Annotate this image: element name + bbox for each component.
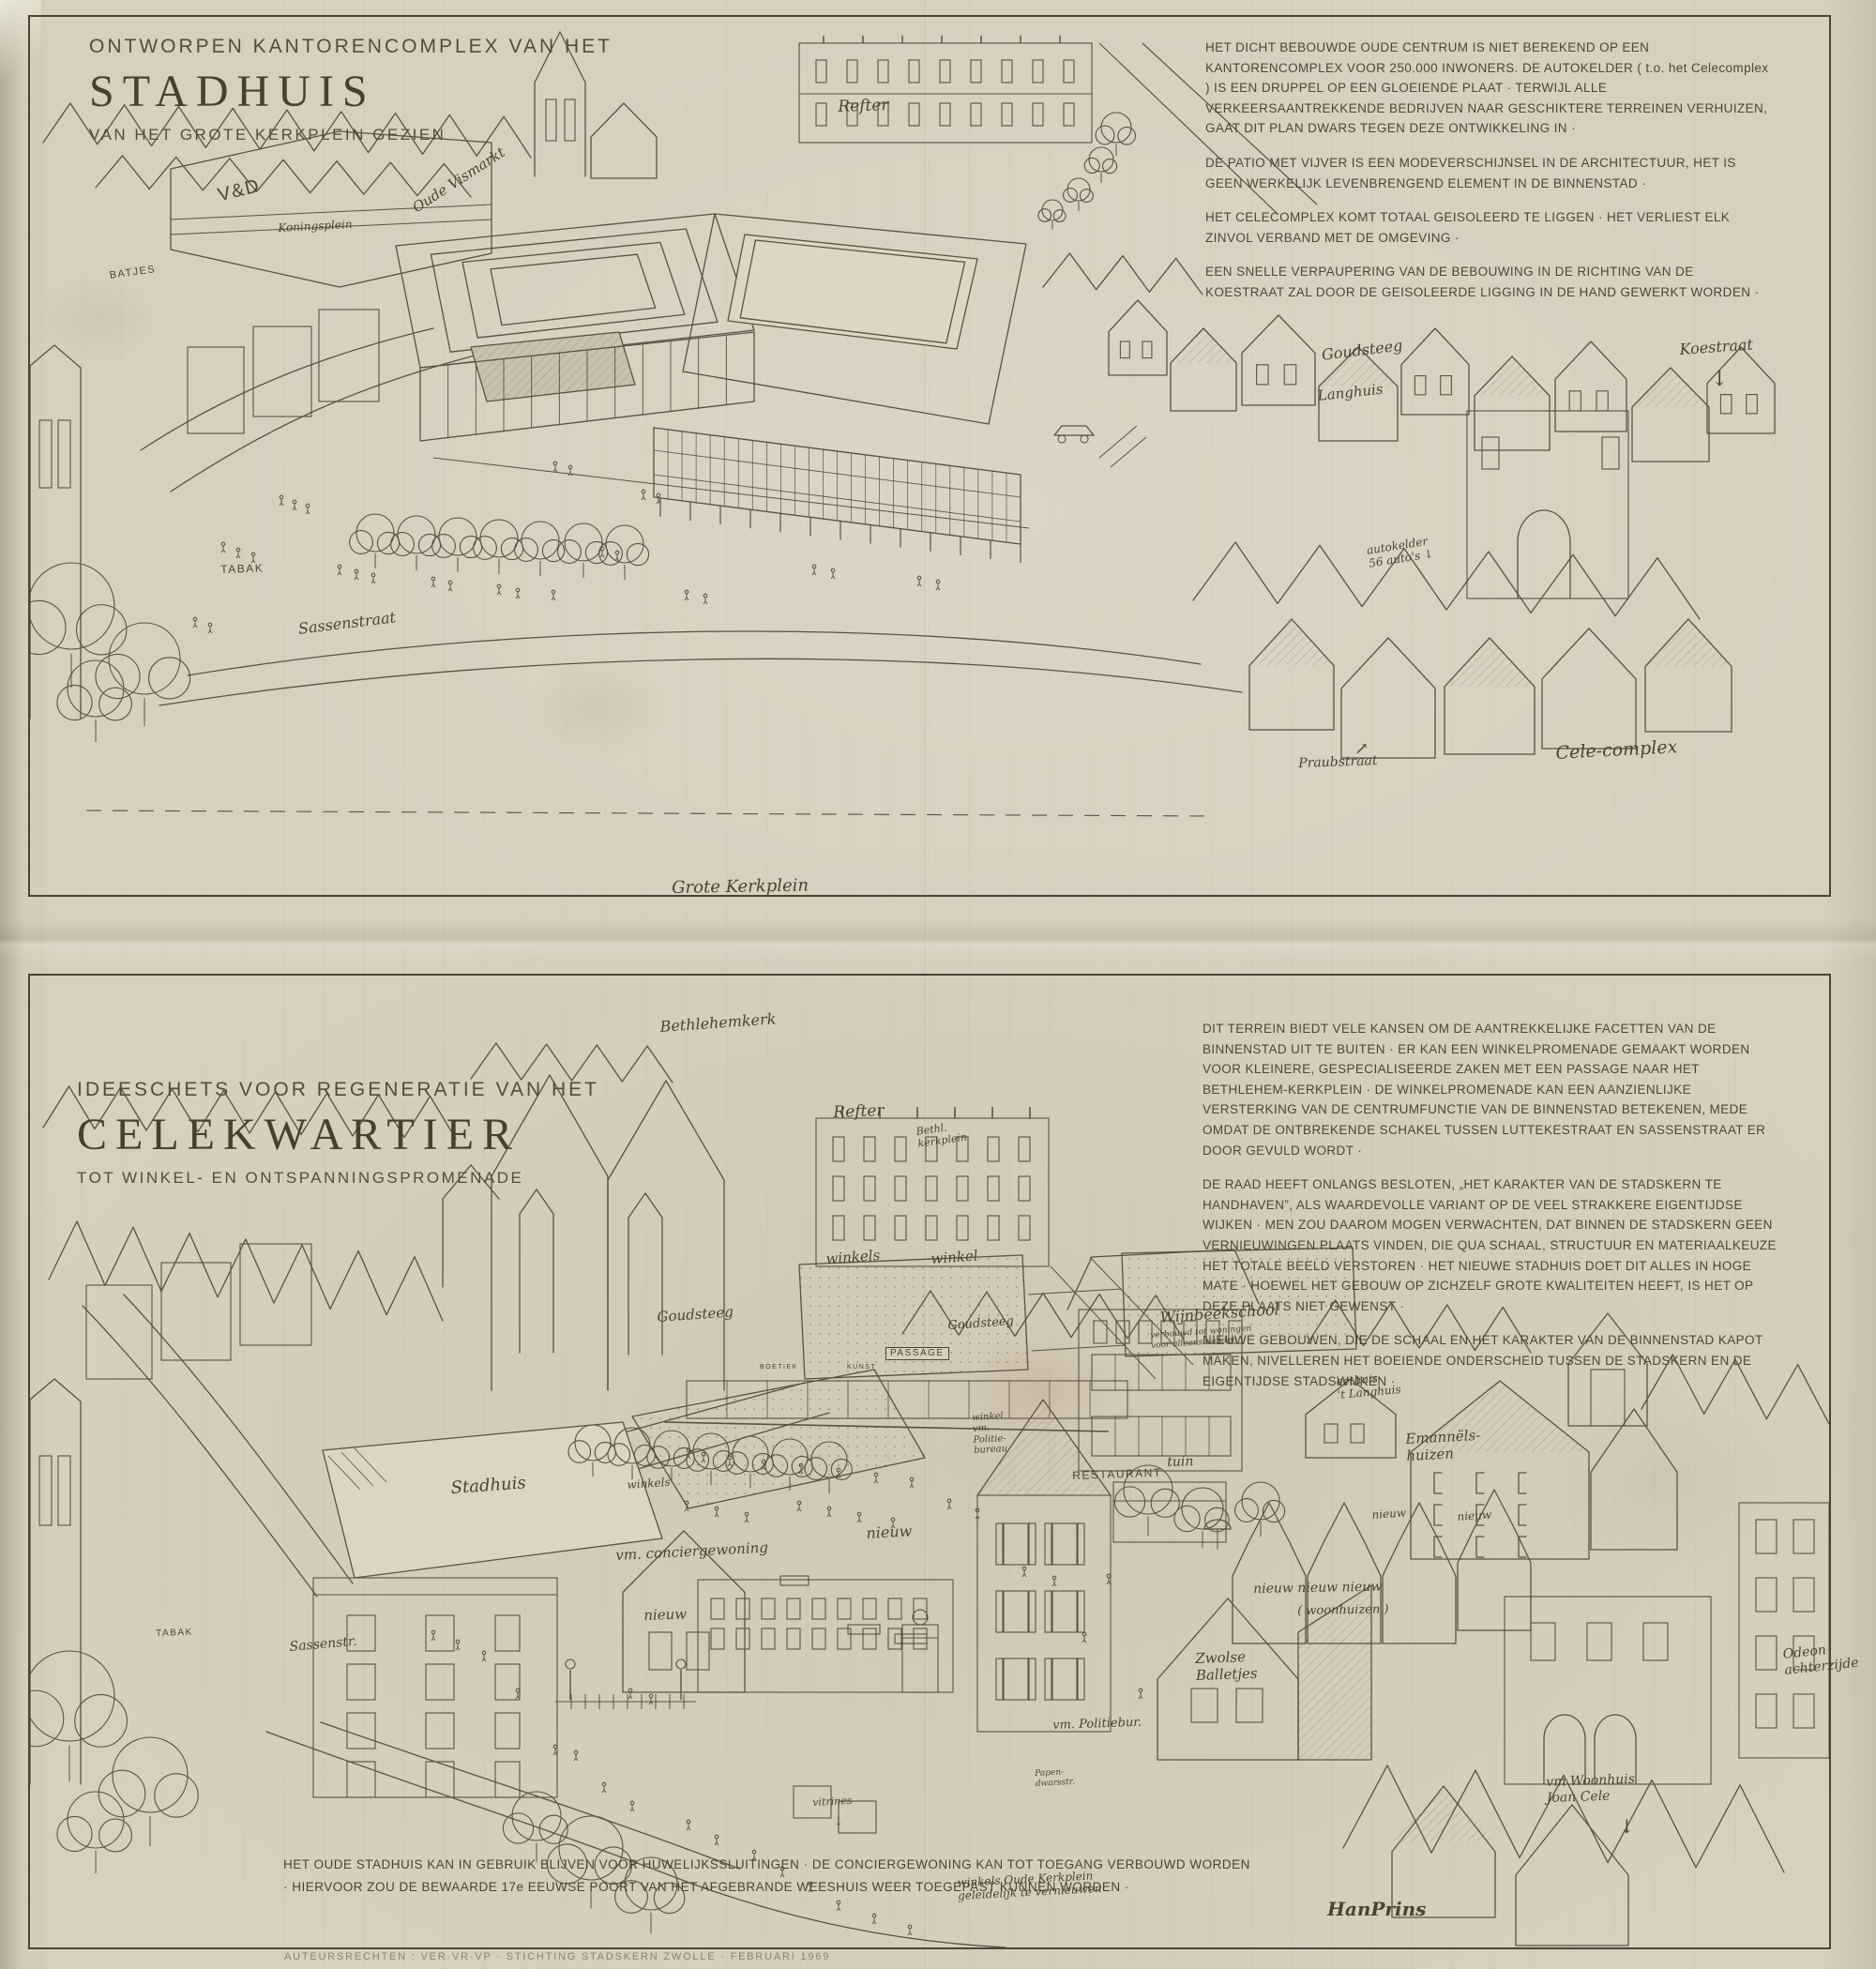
drawing-label: Wijnbeekschool: [1159, 1301, 1279, 1327]
drawing-label: winkels Oude Kerkplein geleidelijk te ve…: [957, 1869, 1102, 1902]
drawing-label: Grote Kerkplein: [672, 875, 809, 898]
drawing-label: nieuw: [1371, 1506, 1407, 1522]
drawing-label: winkel vm. Politie- bureau: [972, 1411, 1007, 1457]
drawing-label: Bethl. kerkplein: [915, 1120, 968, 1151]
drawing-label: Sassenstr.: [289, 1634, 357, 1656]
drawing-label: Refter: [838, 96, 889, 116]
drawing-label: Stadhuis: [450, 1473, 526, 1498]
drawing-label: Oude Vismarkt: [410, 144, 508, 217]
drawing-label: vm. conciergewoning: [615, 1539, 768, 1564]
drawing-label: nieuw: [866, 1522, 913, 1542]
drawing-label: ↓: [1711, 368, 1728, 392]
drawing-label: ( woonhuizen ): [1297, 1602, 1389, 1618]
drawing-label: Goudsteeg: [947, 1314, 1014, 1333]
drawing-label: Papen- dwarsstr.: [1035, 1767, 1075, 1789]
drawing-label: nieuw nieuw nieuw: [1253, 1580, 1383, 1598]
drawing-label: Bethlehemkerk: [659, 1010, 777, 1036]
drawing-label: Koestraat: [1679, 337, 1754, 359]
drawing-label: ↓: [833, 1814, 844, 1830]
annotation-labels: RefterOude VismarktV&DKoningspleinBATJES…: [0, 0, 1876, 1969]
drawing-label: autokelder 56 auto's ↓: [1366, 534, 1434, 570]
drawing-label: Sassenstraat: [297, 609, 397, 638]
drawing-label: Praubstraat: [1298, 753, 1378, 771]
drawing-label: Koningsplein: [278, 218, 353, 235]
drawing-label: Odeon achterzijde: [1782, 1640, 1859, 1678]
drawing-label: verbouwd tot woningen voor alleenstaande…: [1150, 1324, 1252, 1351]
drawing-label: V&D: [216, 175, 263, 207]
drawing-label: BOETIEK: [760, 1364, 798, 1371]
drawing-label: winkel: [930, 1249, 978, 1268]
drawing-label: winkels: [825, 1248, 881, 1268]
drawing-label: KUNST: [847, 1364, 876, 1371]
drawing-label: PASSAGE: [885, 1347, 949, 1360]
drawing-label: vitrines: [812, 1795, 853, 1810]
drawing-label: tuin: [1167, 1454, 1194, 1470]
drawing-label: nieuw: [643, 1606, 687, 1624]
drawing-label: Goudsteeg: [657, 1304, 734, 1325]
drawing-label: Emannëls- huizen: [1405, 1428, 1482, 1465]
drawing-label: Goudsteeg: [1321, 337, 1403, 364]
drawing-label: Cele-complex: [1555, 736, 1678, 764]
drawing-label: vm Woonhuis Joan Cele: [1546, 1772, 1636, 1806]
drawing-sheet: ONTWORPEN KANTORENCOMPLEX VAN HET STADHU…: [0, 0, 1876, 1969]
drawing-label: BATJES: [109, 264, 157, 282]
drawing-label: ↓: [1619, 1816, 1635, 1839]
drawing-label: Langhuis: [1317, 382, 1384, 405]
drawing-label: Zwolse Balletjes: [1195, 1649, 1258, 1685]
drawing-label: Refter: [833, 1101, 885, 1122]
drawing-label: winkels: [627, 1476, 671, 1492]
drawing-label: TABAK: [220, 561, 264, 576]
drawing-label: nieuw: [1457, 1507, 1492, 1523]
drawing-label: vm. Politiebur.: [1052, 1716, 1142, 1734]
drawing-label: eethuis 't Langhuis: [1336, 1370, 1401, 1401]
drawing-label: TABAK: [156, 1628, 193, 1640]
drawing-label: RESTAURANT: [1072, 1466, 1162, 1482]
